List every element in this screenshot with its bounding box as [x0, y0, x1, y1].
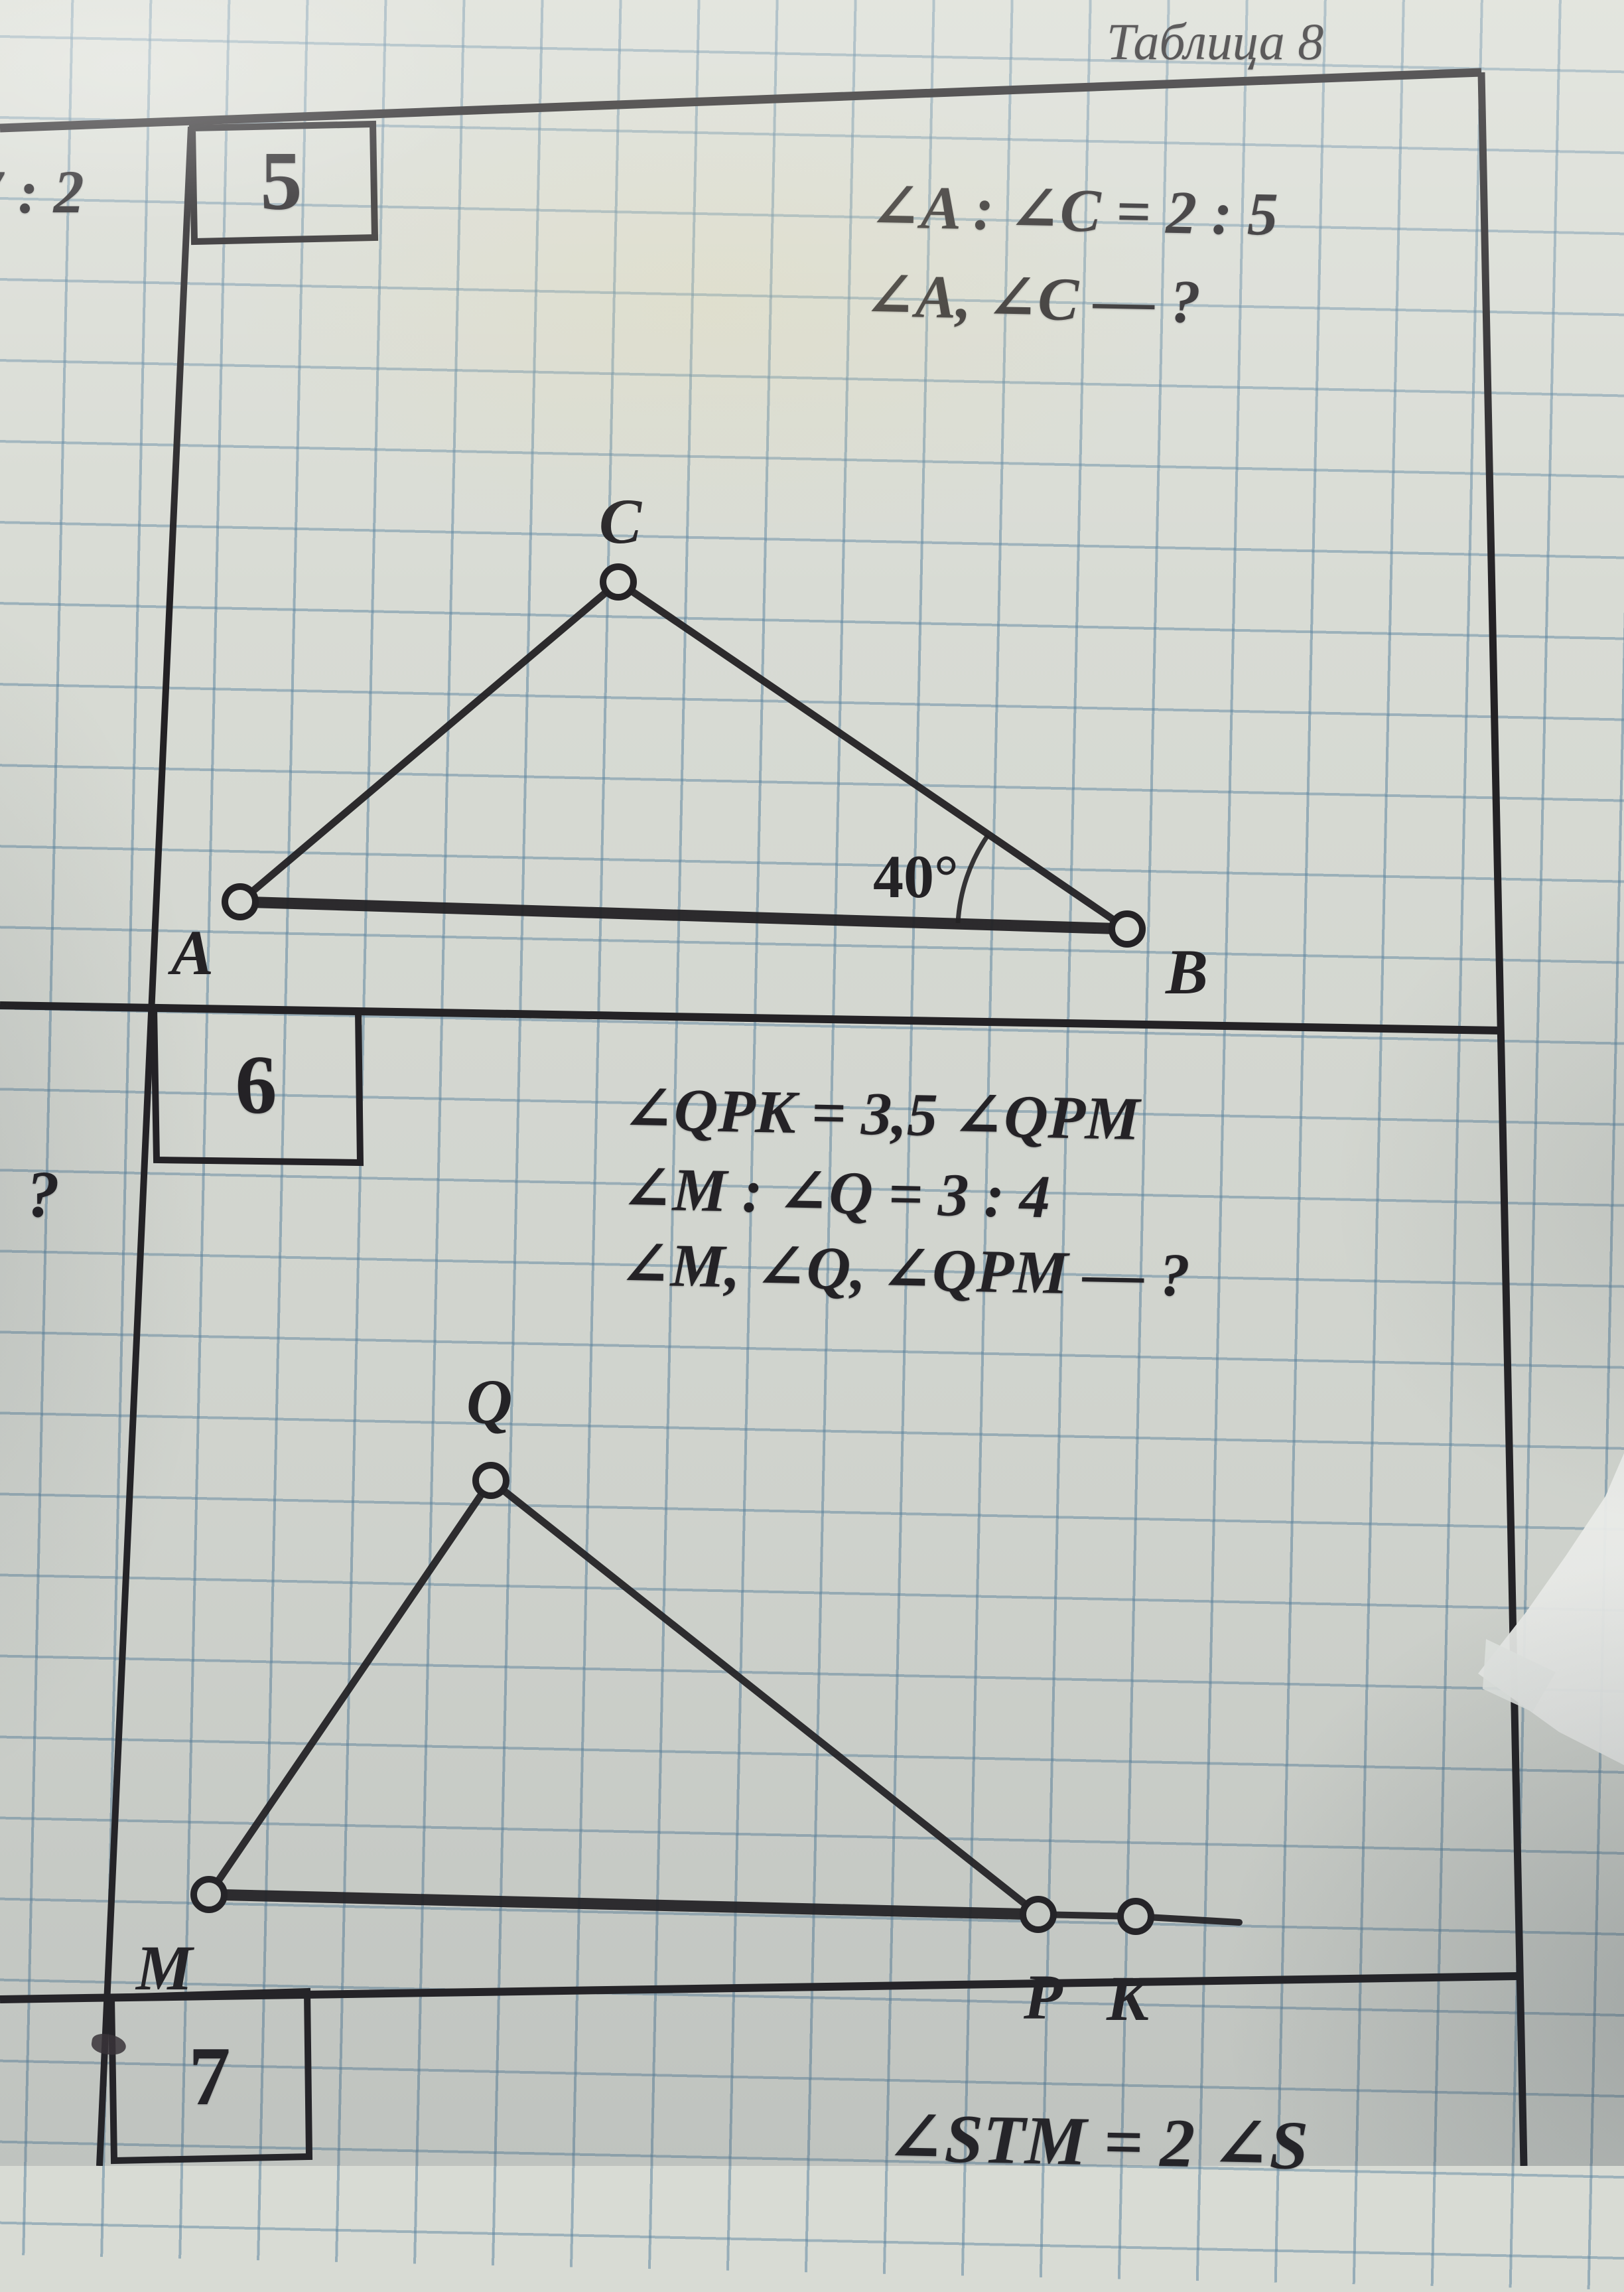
- photographed-workbook-page: { "header": { "title": "Таблица 8" }, "m…: [0, 0, 1624, 2166]
- problem-7-number: 7: [189, 2029, 231, 2125]
- page-title: Таблица 8: [1107, 12, 1323, 72]
- problem-6-number: 6: [236, 1038, 277, 1133]
- problem-6-condition-3: ∠M, ∠Q, ∠QPM — ?: [619, 1228, 1191, 1310]
- problem-5-condition-2: ∠A, ∠C — ?: [864, 259, 1201, 337]
- problem-5-condition-1: ∠A : ∠C = 2 : 5: [869, 170, 1278, 250]
- problem-6-condition-2: ∠M : ∠Q = 3 : 4: [621, 1152, 1051, 1232]
- problem-5-number: 5: [261, 134, 303, 230]
- problem-6-condition-1: ∠QPK = 3,5 ∠QPM: [622, 1072, 1140, 1154]
- margin-fragment-ratio: 7 : 2: [0, 157, 84, 227]
- problem-7-condition-1: ∠STM = 2 ∠S: [886, 2096, 1309, 2185]
- margin-fragment-question: ?: [27, 1156, 60, 1232]
